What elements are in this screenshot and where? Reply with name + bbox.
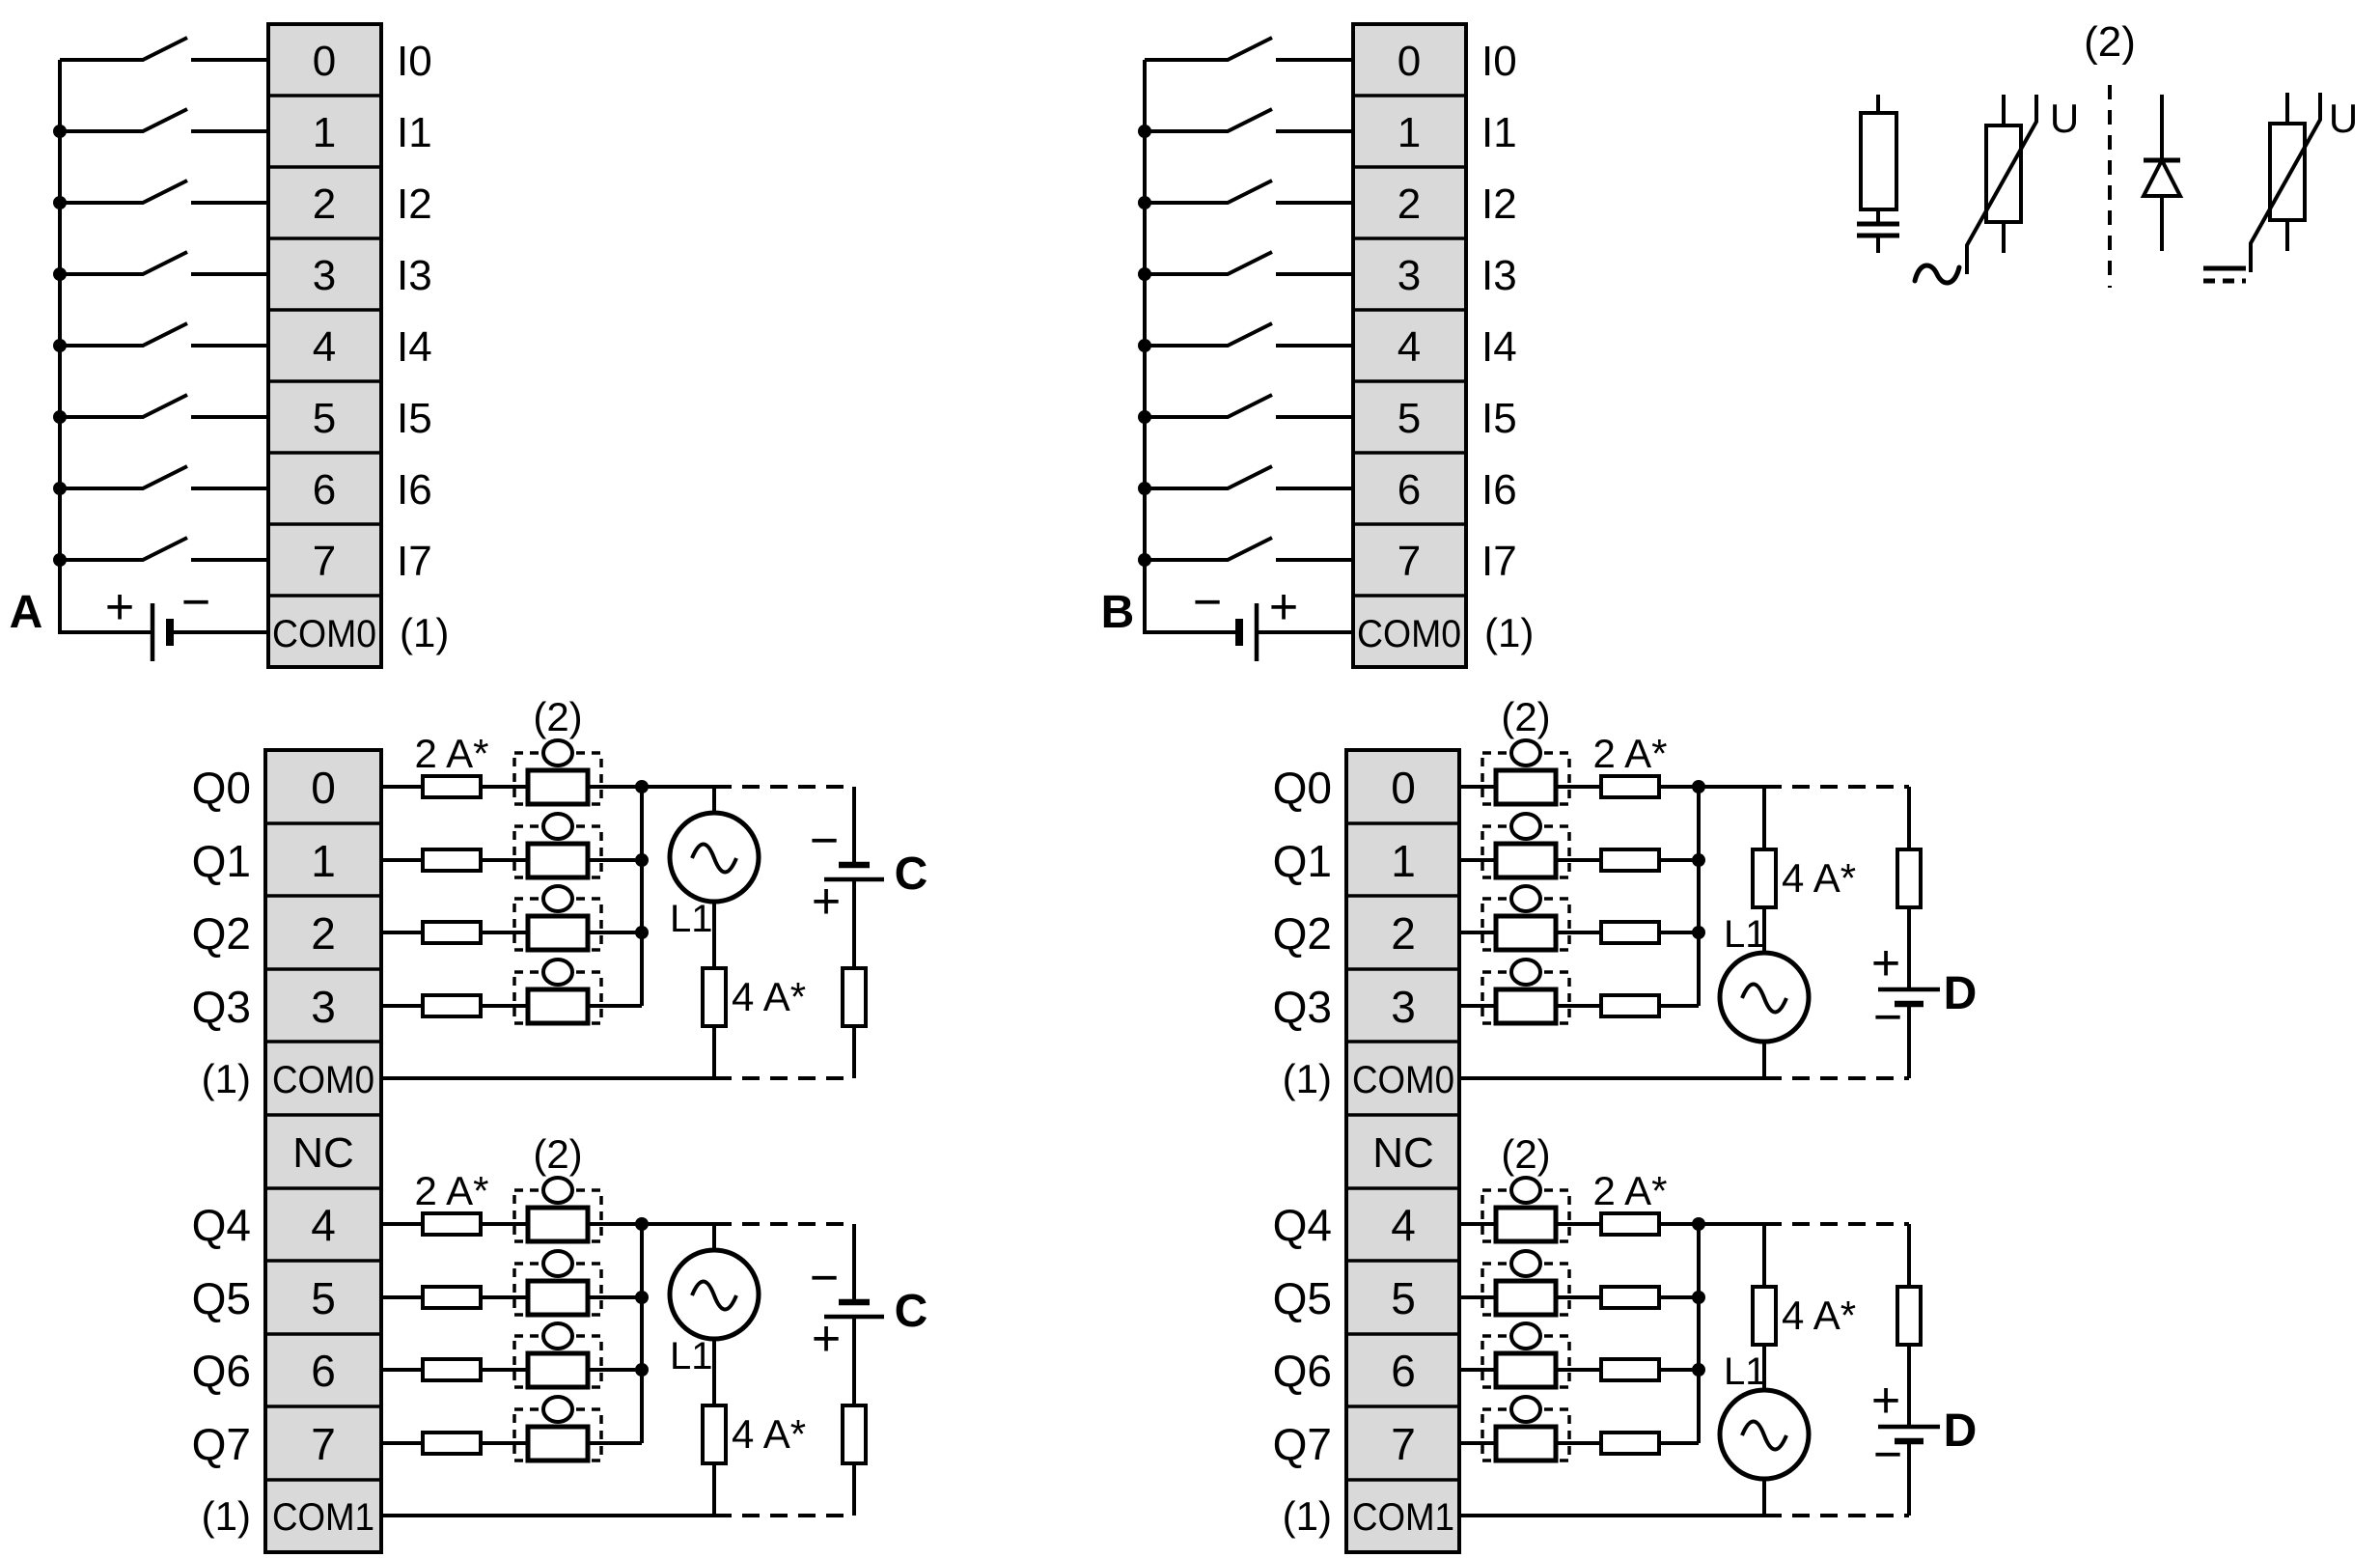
input-block-b: 0 1 2 3 4 5 6 7 COM0 I0 I1 I2 I3 I4 I5 I… — [1101, 24, 1535, 667]
signal-label: I2 — [1481, 181, 1517, 228]
branch-fuse-label: 2 A* — [1592, 731, 1667, 776]
varistor-icon — [1967, 95, 2036, 274]
terminal-label: 7 — [1398, 538, 1421, 585]
protection-icon — [1482, 740, 1569, 804]
signal-label: I2 — [397, 181, 432, 228]
protection-icon — [514, 960, 601, 1023]
switch-icon — [1145, 466, 1353, 488]
polarity-minus: − — [1873, 1427, 1902, 1483]
signal-label: I4 — [1481, 323, 1517, 371]
junction-dot — [1138, 410, 1151, 424]
terminal-label: 3 — [311, 982, 336, 1032]
protection-icon — [1482, 814, 1569, 877]
terminal-label: NC — [1372, 1129, 1434, 1177]
junction-dot — [1138, 125, 1151, 138]
terminal-label: 3 — [1391, 982, 1416, 1032]
terminal-label: COM0 — [1352, 1059, 1454, 1101]
channel-label: Q3 — [1273, 982, 1332, 1032]
fuse-icon — [1601, 1359, 1659, 1380]
protection-icon — [514, 1251, 601, 1315]
com-note: (1) — [202, 1056, 251, 1101]
terminal-label: 6 — [1398, 466, 1421, 514]
terminal-label: 2 — [311, 908, 336, 959]
fuse-icon — [1601, 1287, 1659, 1308]
output-left-terminal-strip: 0 1 2 3 COM0 NC 4 5 6 7 COM1 — [265, 750, 381, 1552]
terminal-label: 2 — [1398, 181, 1421, 228]
terminal-label: 5 — [313, 395, 336, 442]
battery-icon — [1239, 603, 1257, 661]
protection-icon — [1482, 1178, 1569, 1241]
signal-label: I7 — [1481, 538, 1517, 585]
junction-dot — [53, 196, 67, 209]
battery-icon — [152, 603, 170, 661]
terminal-label: 1 — [1391, 836, 1416, 886]
protection-icon — [514, 886, 601, 950]
terminal-label: COM0 — [1357, 613, 1461, 655]
terminal-label: 6 — [1391, 1346, 1416, 1396]
signal-label: I3 — [397, 252, 432, 299]
protection-note: (2) — [533, 1131, 582, 1177]
terminal-label: 0 — [1398, 38, 1421, 85]
junction-dot — [53, 267, 67, 281]
switch-icon — [1145, 38, 1353, 60]
junction-dot — [53, 125, 67, 138]
junction-dot — [1138, 553, 1151, 567]
terminal-label: 7 — [313, 538, 336, 585]
terminal-label: 0 — [1391, 763, 1416, 813]
ac-symbol — [1915, 265, 1959, 283]
protection-icon — [1482, 1397, 1569, 1461]
switch-icon — [1145, 323, 1353, 346]
switch-icon — [60, 38, 268, 60]
protection-note: (2) — [1501, 694, 1550, 739]
channel-label: Q5 — [192, 1273, 251, 1323]
polarity-plus: + — [105, 579, 134, 635]
fuse-icon — [1897, 849, 1921, 907]
polarity-minus: − — [810, 1250, 839, 1306]
polarity-plus: + — [1871, 935, 1900, 991]
terminal-label: 3 — [313, 252, 336, 299]
switch-icon — [60, 252, 268, 274]
switch-icon — [60, 323, 268, 346]
switch-icon — [60, 181, 268, 203]
line-fuse-label: 4 A* — [1782, 855, 1856, 901]
terminal-label: 4 — [313, 323, 336, 371]
fuse-icon — [703, 968, 726, 1026]
fuse-icon — [1601, 995, 1659, 1016]
polarity-minus: − — [1873, 989, 1902, 1045]
channel-label: Q1 — [1273, 836, 1332, 886]
terminal-label: 1 — [1398, 109, 1421, 156]
fuse-icon — [423, 776, 481, 797]
diagram-canvas: 0 1 2 3 4 5 6 7 COM0 I0 I1 I2 I3 I4 I5 I… — [0, 0, 2380, 1558]
switch-icon — [1145, 181, 1353, 203]
fuse-icon — [423, 1287, 481, 1308]
junction-dot — [635, 1291, 649, 1304]
channel-label: Q2 — [192, 908, 251, 959]
ac-source-icon — [1720, 1390, 1809, 1479]
source-label: L1 — [1724, 1350, 1767, 1393]
wiring-diagram: 0 1 2 3 4 5 6 7 COM0 I0 I1 I2 I3 I4 I5 I… — [0, 0, 2380, 1558]
channel-label: Q0 — [1273, 763, 1332, 813]
switch-icon — [1145, 395, 1353, 417]
fuse-icon — [1601, 776, 1659, 797]
terminal-label: 0 — [311, 763, 336, 813]
fuse-icon — [1753, 1287, 1776, 1345]
fuse-icon — [423, 1433, 481, 1454]
suppressor-legend: (2) U U — [1857, 18, 2358, 288]
branch-fuse-label: 2 A* — [1592, 1168, 1667, 1213]
terminal-label: 5 — [311, 1273, 336, 1323]
polarity-minus: − — [1193, 574, 1222, 630]
terminal-label: 3 — [1398, 252, 1421, 299]
terminal-label: 5 — [1391, 1273, 1416, 1323]
signal-label: I4 — [397, 323, 432, 371]
fuse-icon — [1601, 922, 1659, 943]
channel-label: Q7 — [1273, 1419, 1332, 1469]
block-label: A — [10, 587, 43, 638]
terminal-label: 5 — [1398, 395, 1421, 442]
polarity-plus: + — [1871, 1373, 1900, 1429]
switch-icon — [60, 538, 268, 560]
junction-dot — [635, 853, 649, 867]
fuse-icon — [423, 1213, 481, 1235]
junction-dot — [1692, 1363, 1705, 1377]
terminal-label: 6 — [313, 466, 336, 514]
fuse-icon — [423, 849, 481, 871]
terminal-label: 4 — [1398, 323, 1421, 371]
fuse-icon — [843, 1405, 866, 1463]
junction-dot — [1692, 780, 1705, 793]
protection-icon — [514, 1397, 601, 1461]
junction-dot — [53, 553, 67, 567]
input-a-terminal-strip: 0 1 2 3 4 5 6 7 COM0 — [268, 24, 381, 667]
fuse-icon — [1753, 849, 1776, 907]
line-fuse-label: 4 A* — [1782, 1293, 1856, 1338]
line-fuse-label: 4 A* — [732, 1411, 806, 1457]
polarity-plus: + — [812, 1311, 841, 1367]
supply-label: D — [1944, 1405, 1978, 1457]
supply-label: C — [895, 1286, 928, 1337]
ac-source-icon — [1720, 953, 1809, 1042]
source-label: L1 — [1724, 913, 1767, 956]
source-label: L1 — [670, 898, 713, 940]
signal-label: I1 — [1481, 109, 1517, 156]
junction-dot — [53, 410, 67, 424]
branch-fuse-label: 2 A* — [414, 731, 488, 776]
polarity-plus: + — [1269, 579, 1298, 635]
varistor-voltage-label: U — [2329, 96, 2358, 141]
junction-dot — [1138, 267, 1151, 281]
terminal-label: 4 — [1391, 1200, 1416, 1250]
protection-icon — [514, 1178, 601, 1241]
channel-label: Q0 — [192, 763, 251, 813]
fuse-icon — [423, 995, 481, 1016]
input-a-wires — [53, 38, 268, 661]
terminal-label: 1 — [313, 109, 336, 156]
com-note: (1) — [1484, 610, 1534, 655]
signal-label: I0 — [1481, 38, 1517, 85]
signal-label: I1 — [397, 109, 432, 156]
terminal-label: NC — [292, 1129, 354, 1177]
input-b-terminal-strip: 0 1 2 3 4 5 6 7 COM0 — [1353, 24, 1466, 667]
protection-icon — [1482, 1251, 1569, 1315]
terminal-label: 1 — [311, 836, 336, 886]
channel-label: Q6 — [1273, 1346, 1332, 1396]
terminal-label: 7 — [311, 1419, 336, 1469]
supply-label: D — [1944, 968, 1978, 1019]
channel-label: Q4 — [192, 1200, 251, 1250]
switch-icon — [1145, 109, 1353, 131]
varistor-voltage-label: U — [2050, 96, 2079, 141]
junction-dot — [1692, 1291, 1705, 1304]
polarity-minus: − — [810, 813, 839, 869]
output-block-left: 0 1 2 3 COM0 NC 4 5 6 7 COM1 Q0 Q1 Q2 Q3… — [192, 694, 928, 1552]
fuse-icon — [1601, 1213, 1659, 1235]
junction-dot — [635, 1363, 649, 1377]
channel-label: Q2 — [1273, 908, 1332, 959]
output-right-wires — [1459, 740, 1940, 1516]
supply-label: C — [895, 849, 928, 900]
com-note: (1) — [1283, 1056, 1332, 1101]
input-block-a: 0 1 2 3 4 5 6 7 COM0 I0 I1 I2 I3 I4 I5 I… — [10, 24, 450, 667]
junction-dot — [53, 482, 67, 495]
channel-label: Q7 — [192, 1419, 251, 1469]
source-label: L1 — [670, 1335, 713, 1377]
com-note: (1) — [1283, 1493, 1332, 1539]
signal-label: I5 — [1481, 395, 1517, 442]
junction-dot — [635, 1217, 649, 1231]
protection-icon — [1482, 1323, 1569, 1387]
signal-label: I5 — [397, 395, 432, 442]
protection-icon — [1482, 886, 1569, 950]
protection-note: (2) — [533, 694, 582, 739]
terminal-label: COM0 — [272, 1059, 374, 1101]
signal-label: I7 — [397, 538, 432, 585]
signal-label: I6 — [1481, 466, 1517, 514]
terminal-label: 4 — [311, 1200, 336, 1250]
terminal-label: 2 — [1391, 908, 1416, 959]
input-b-wires — [1138, 38, 1353, 661]
switch-icon — [60, 109, 268, 131]
protection-icon — [514, 740, 601, 804]
terminal-label: 6 — [311, 1346, 336, 1396]
polarity-minus: − — [181, 574, 210, 630]
protection-icon — [1482, 960, 1569, 1023]
varistor-icon — [2251, 93, 2320, 272]
switch-icon — [1145, 252, 1353, 274]
junction-dot — [1138, 196, 1151, 209]
signal-label: I6 — [397, 466, 432, 514]
switch-icon — [60, 395, 268, 417]
junction-dot — [1692, 853, 1705, 867]
fuse-icon — [423, 922, 481, 943]
signal-label: I3 — [1481, 252, 1517, 299]
output-right-terminal-strip: 0 1 2 3 COM0 NC 4 5 6 7 COM1 — [1346, 750, 1459, 1552]
channel-label: Q5 — [1273, 1273, 1332, 1323]
block-label: B — [1101, 587, 1135, 638]
terminal-label: 2 — [313, 181, 336, 228]
fuse-icon — [843, 968, 866, 1026]
branch-fuse-label: 2 A* — [414, 1168, 488, 1213]
channel-label: Q3 — [192, 982, 251, 1032]
legend-title: (2) — [2084, 18, 2136, 66]
junction-dot — [53, 339, 67, 352]
polarity-plus: + — [812, 874, 841, 930]
channel-label: Q1 — [192, 836, 251, 886]
com-note: (1) — [400, 610, 449, 655]
fuse-icon — [1601, 849, 1659, 871]
junction-dot — [1138, 482, 1151, 495]
signal-label: I0 — [397, 38, 432, 85]
switch-icon — [60, 466, 268, 488]
protection-icon — [514, 814, 601, 877]
junction-dot — [1692, 1217, 1705, 1231]
switch-icon — [1145, 538, 1353, 560]
fuse-icon — [423, 1359, 481, 1380]
terminal-label: COM1 — [1352, 1496, 1454, 1539]
fuse-icon — [1897, 1287, 1921, 1345]
terminal-label: 7 — [1391, 1419, 1416, 1469]
protection-icon — [514, 1323, 601, 1387]
com-note: (1) — [202, 1493, 251, 1539]
dc-symbol — [2203, 268, 2246, 281]
terminal-label: 0 — [313, 38, 336, 85]
channel-label: Q4 — [1273, 1200, 1332, 1250]
fuse-icon — [703, 1405, 726, 1463]
ac-source-icon — [670, 1250, 759, 1339]
junction-dot — [1692, 926, 1705, 939]
diode-icon — [2144, 95, 2180, 251]
terminal-label: COM0 — [272, 613, 376, 655]
protection-note: (2) — [1501, 1131, 1550, 1177]
channel-label: Q6 — [192, 1346, 251, 1396]
junction-dot — [635, 926, 649, 939]
junction-dot — [1138, 339, 1151, 352]
fuse-icon — [1601, 1433, 1659, 1454]
line-fuse-label: 4 A* — [732, 974, 806, 1019]
rc-snubber-icon — [1857, 95, 1899, 253]
ac-source-icon — [670, 813, 759, 902]
junction-dot — [635, 780, 649, 793]
output-block-right: 0 1 2 3 COM0 NC 4 5 6 7 COM1 Q0 Q1 Q2 Q3… — [1273, 694, 1978, 1552]
terminal-label: COM1 — [272, 1496, 374, 1539]
